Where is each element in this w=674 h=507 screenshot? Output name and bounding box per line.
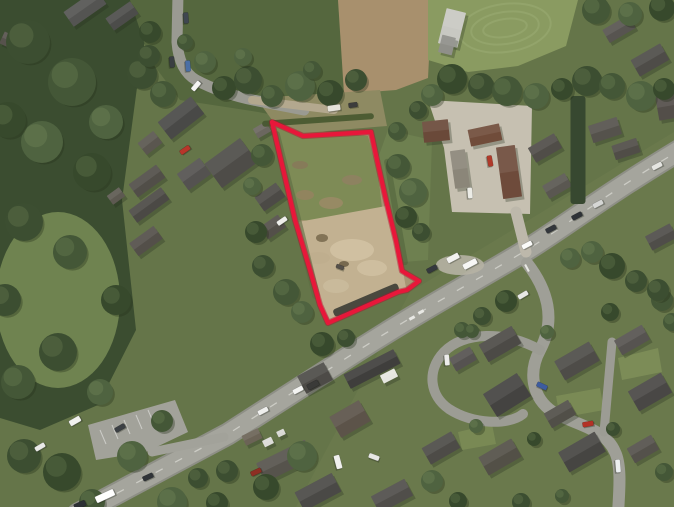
tree-canopy-highlight — [513, 494, 523, 504]
tree-canopy-highlight — [474, 308, 484, 318]
tree-canopy-highlight — [607, 423, 615, 431]
tree-canopy-highlight — [410, 102, 420, 112]
tree-canopy-highlight — [413, 224, 423, 234]
ground-patch — [292, 161, 308, 169]
ground-patch — [296, 190, 314, 200]
vehicle — [185, 60, 191, 71]
tree-canopy-highlight — [10, 442, 29, 461]
building-roof-highlight — [450, 149, 467, 170]
ground-patch — [323, 279, 349, 293]
vehicle — [169, 56, 175, 67]
tree-canopy-highlight — [46, 456, 67, 477]
tree-canopy-highlight — [24, 124, 47, 147]
ground-patch — [330, 239, 374, 261]
tree-canopy-highlight — [466, 325, 474, 333]
tree-canopy-highlight — [401, 180, 416, 195]
tree-canopy-highlight — [455, 323, 464, 332]
tree-canopy-highlight — [287, 73, 304, 90]
tree-canopy-highlight — [553, 80, 565, 92]
tree-canopy-highlight — [601, 75, 615, 89]
tree-canopy-highlight — [152, 83, 166, 97]
tree-canopy-highlight — [275, 281, 289, 295]
tree-canopy-highlight — [159, 489, 176, 506]
tree-canopy-highlight — [153, 412, 165, 424]
tree-canopy-highlight — [655, 80, 667, 92]
tree-canopy-highlight — [574, 68, 591, 85]
tree-canopy-highlight — [119, 443, 136, 460]
tree-canopy-highlight — [620, 4, 633, 17]
tree-canopy-highlight — [52, 62, 78, 88]
tree-canopy-highlight — [103, 287, 120, 304]
tree-canopy-highlight — [263, 87, 275, 99]
vehicle — [348, 102, 358, 108]
tree-canopy-highlight — [76, 156, 97, 177]
vehicle — [467, 187, 473, 198]
tree-canopy-highlight — [347, 71, 359, 83]
tree-canopy-highlight — [423, 86, 435, 98]
tree-canopy-highlight — [664, 314, 674, 324]
tree-canopy-highlight — [255, 476, 269, 490]
tree-canopy-highlight — [196, 53, 208, 65]
tree-canopy-highlight — [583, 243, 595, 255]
tree-canopy-highlight — [214, 78, 227, 91]
ground-patch — [342, 175, 362, 185]
tree-canopy-highlight — [494, 78, 511, 95]
tree-canopy-highlight — [190, 470, 201, 481]
tree-canopy-highlight — [42, 336, 63, 357]
tree-canopy-highlight — [56, 238, 75, 257]
tree-canopy-highlight — [208, 494, 220, 506]
tree-canopy-highlight — [92, 108, 111, 127]
tree-canopy-highlight — [628, 83, 645, 100]
ground-patch — [357, 260, 387, 276]
tree-canopy-highlight — [312, 334, 325, 347]
tree-canopy-highlight — [235, 49, 245, 59]
tree-canopy-highlight — [289, 443, 306, 460]
aerial-photo-canvas — [0, 0, 674, 507]
tree-canopy-highlight — [389, 123, 399, 133]
tree-canopy-highlight — [627, 272, 639, 284]
tree-canopy-highlight — [236, 68, 251, 83]
tree-canopy-highlight — [562, 250, 573, 261]
tree-canopy-highlight — [470, 420, 478, 428]
tree-canopy-highlight — [525, 85, 539, 99]
tree-canopy-highlight — [140, 47, 152, 59]
tree-canopy-highlight — [423, 472, 435, 484]
tree-canopy-highlight — [247, 223, 259, 235]
tree-canopy-highlight — [541, 326, 549, 334]
vehicle — [183, 12, 189, 23]
hedge — [571, 96, 586, 204]
tree-canopy-highlight — [470, 75, 484, 89]
vehicle — [615, 459, 621, 472]
tree-canopy-highlight — [8, 206, 29, 227]
tree-canopy-highlight — [439, 66, 456, 83]
tree-canopy-highlight — [254, 257, 266, 269]
tree-canopy-highlight — [304, 62, 314, 72]
tree-canopy-highlight — [4, 368, 23, 387]
tree-canopy-highlight — [602, 304, 612, 314]
tree-canopy-highlight — [319, 82, 333, 96]
tree-canopy-highlight — [9, 23, 33, 47]
tree-canopy-highlight — [388, 156, 401, 169]
building-roof-highlight — [496, 145, 518, 173]
tree-canopy-highlight — [497, 292, 509, 304]
tree-canopy-highlight — [338, 330, 348, 340]
tree-canopy-highlight — [649, 281, 661, 293]
ground-patch — [319, 197, 343, 209]
tree-canopy-highlight — [601, 255, 615, 269]
vehicle — [444, 354, 450, 365]
tree-canopy-highlight — [89, 381, 103, 395]
tree-canopy-highlight — [450, 493, 460, 503]
aerial-site-photo — [0, 0, 674, 507]
tree-canopy-highlight — [528, 433, 536, 441]
tree-canopy-highlight — [218, 462, 230, 474]
tree-canopy-highlight — [556, 490, 564, 498]
tree-canopy-highlight — [293, 303, 305, 315]
tree-canopy-highlight — [656, 464, 666, 474]
tree-canopy-highlight — [253, 146, 265, 158]
tree-canopy-highlight — [178, 35, 187, 44]
tree-canopy-highlight — [397, 208, 409, 220]
tree-canopy-highlight — [141, 23, 153, 35]
tree-canopy-highlight — [244, 178, 254, 188]
ground-patch — [316, 234, 328, 242]
